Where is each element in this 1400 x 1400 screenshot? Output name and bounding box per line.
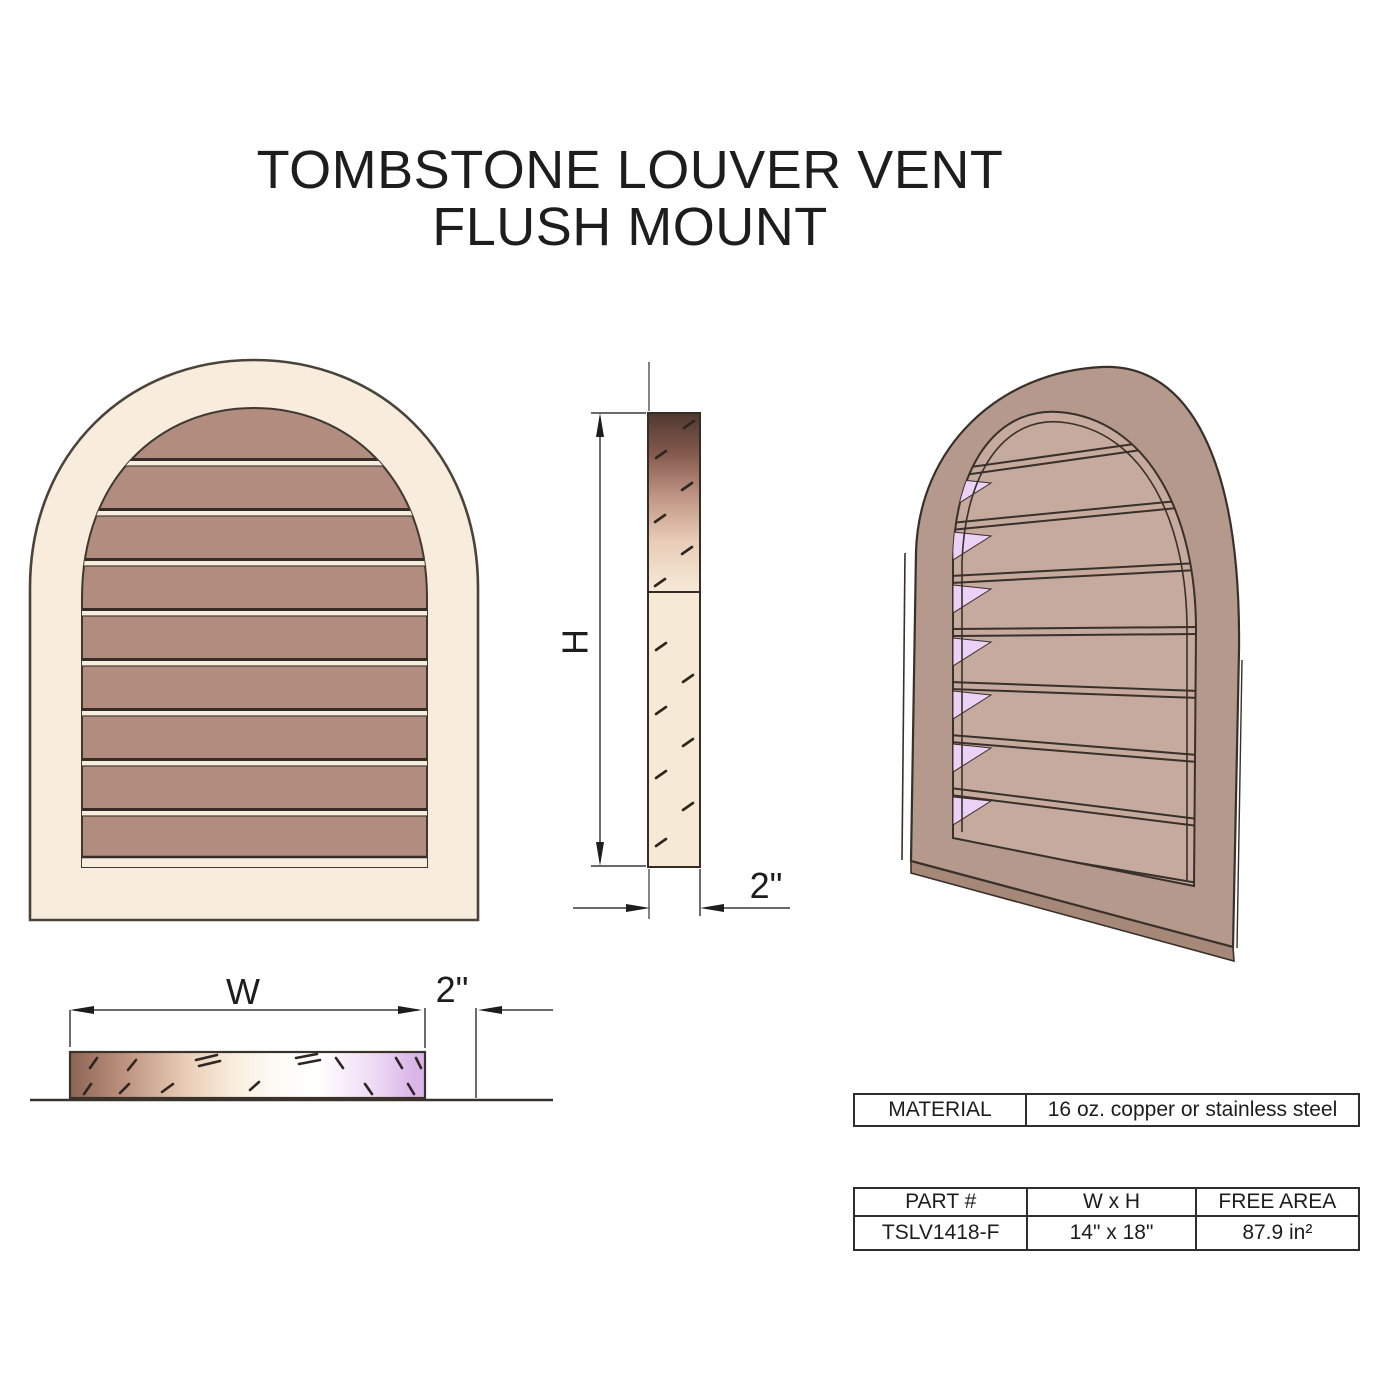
part-table-data-row: TSLV1418-F 14" x 18" 87.9 in² [854, 1216, 1359, 1250]
part-table: PART # W x H FREE AREA TSLV1418-F 14" x … [853, 1187, 1360, 1251]
perspective-view [902, 367, 1242, 961]
front-view [30, 360, 478, 920]
dimension-width: W [70, 971, 425, 1048]
part-number-value: TSLV1418-F [854, 1216, 1027, 1250]
material-value: 16 oz. copper or stainless steel [1026, 1094, 1359, 1126]
free-area-value: 87.9 in² [1196, 1216, 1359, 1250]
dimension-bottom-depth: 2" [436, 969, 553, 1098]
side-view: H 2" [555, 362, 790, 919]
part-number-header: PART # [854, 1188, 1027, 1216]
height-dim-label: H [555, 629, 596, 655]
front-opening [82, 408, 427, 867]
dimension-side-depth: 2" [573, 865, 790, 916]
bottom-depth-label: 2" [436, 969, 469, 1010]
persp-left-edge [902, 553, 905, 860]
part-table-header-row: PART # W x H FREE AREA [854, 1188, 1359, 1216]
side-profile-upper [648, 413, 700, 592]
width-dim-label: W [226, 971, 260, 1012]
free-area-header: FREE AREA [1196, 1188, 1359, 1216]
material-table: MATERIAL 16 oz. copper or stainless stee… [853, 1093, 1360, 1127]
material-label: MATERIAL [854, 1094, 1026, 1126]
side-depth-label: 2" [750, 865, 783, 906]
side-profile-lower [648, 592, 700, 867]
title-line-1: TOMBSTONE LOUVER VENT [0, 142, 1260, 199]
title-line-2: FLUSH MOUNT [0, 199, 1260, 256]
dimension-height: H [555, 413, 646, 866]
bottom-view: W 2" [30, 969, 553, 1100]
size-header: W x H [1027, 1188, 1195, 1216]
drawing-title: TOMBSTONE LOUVER VENT FLUSH MOUNT [0, 142, 1260, 256]
size-value: 14" x 18" [1027, 1216, 1195, 1250]
